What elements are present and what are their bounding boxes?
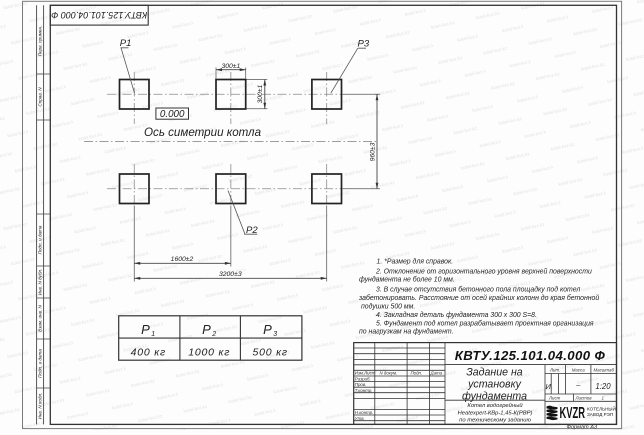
svg-text:2: 2 bbox=[211, 331, 216, 338]
svg-text:КОТЕЛЬНЫЙ: КОТЕЛЬНЫЙ bbox=[587, 405, 616, 412]
svg-text:Изм.Лист: Изм.Лист bbox=[355, 371, 376, 376]
svg-text:2. Отклонение от горизонтально: 2. Отклонение от горизонтального уровня … bbox=[375, 268, 592, 276]
svg-text:Взам. инв. N: Взам. инв. N bbox=[38, 304, 43, 331]
svg-text:Котел водогрейный: Котел водогрейный bbox=[467, 402, 523, 409]
svg-text:P: P bbox=[263, 322, 272, 337]
svg-text:Разраб.: Разраб. bbox=[355, 377, 371, 382]
svg-text:P: P bbox=[202, 322, 211, 337]
svg-text:960±3: 960±3 bbox=[370, 142, 377, 161]
svg-text:Н.контр.: Н.контр. bbox=[355, 410, 374, 415]
svg-text:Т.контр.: Т.контр. bbox=[355, 388, 373, 393]
svg-text:Перв. примен.: Перв. примен. bbox=[38, 26, 43, 57]
svg-text:Утв.: Утв. bbox=[355, 416, 365, 421]
svg-text:Лит.: Лит. bbox=[549, 367, 560, 372]
svg-text:5. Фундамент под котел разраба: 5. Фундамент под котел разрабатывает про… bbox=[376, 319, 594, 327]
svg-text:Подп. и дата: Подп. и дата bbox=[38, 225, 43, 254]
svg-text:3200±3: 3200±3 bbox=[219, 271, 242, 278]
svg-text:P1: P1 bbox=[120, 38, 132, 49]
svg-text:Heatexpert-КВр-1,45-К(РВР): Heatexpert-КВр-1,45-К(РВР) bbox=[458, 411, 533, 417]
svg-text:3: 3 bbox=[273, 331, 277, 338]
svg-text:P: P bbox=[141, 322, 150, 337]
svg-text:И: И bbox=[546, 382, 552, 391]
svg-text:400 кг: 400 кг bbox=[131, 347, 166, 359]
svg-text:Формат А3: Формат А3 bbox=[567, 424, 598, 430]
svg-text:1600±2: 1600±2 bbox=[171, 256, 194, 263]
svg-text:300±1: 300±1 bbox=[257, 84, 264, 103]
svg-text:1: 1 bbox=[151, 331, 155, 338]
svg-text:Ось симетрии котла: Ось симетрии котла bbox=[144, 126, 262, 139]
svg-text:Задание на: Задание на bbox=[466, 366, 523, 378]
svg-text:Лист: Лист bbox=[548, 395, 561, 400]
svg-text:Подп. и дата: Подп. и дата bbox=[38, 349, 43, 378]
svg-text:3. В случае отсутствия бетонно: 3. В случае отсутствия бетонного пола пл… bbox=[376, 286, 580, 294]
svg-text:N докум.: N докум. bbox=[380, 371, 398, 376]
svg-text:установку: установку bbox=[467, 378, 521, 390]
svg-text:Инв. N дубл.: Инв. N дубл. bbox=[38, 269, 43, 296]
svg-text:4. Закладная деталь фундамента: 4. Закладная деталь фундамента 300 х 300… bbox=[376, 311, 537, 319]
svg-text:забетонировать. Расстояние от: забетонировать. Расстояние от осей крайн… bbox=[358, 294, 599, 302]
svg-text:–: – bbox=[575, 380, 581, 389]
svg-text:фундамента: фундамента bbox=[462, 391, 527, 403]
svg-text:КВТУ.125.101.04.000 Ф: КВТУ.125.101.04.000 Ф bbox=[51, 10, 147, 20]
svg-text:KVZR: KVZR bbox=[560, 405, 586, 422]
svg-text:Масштаб: Масштаб bbox=[593, 367, 614, 372]
svg-text:1:20: 1:20 bbox=[595, 382, 611, 391]
svg-text:Подп.: Подп. bbox=[411, 371, 423, 376]
svg-text:300±1: 300±1 bbox=[221, 63, 240, 70]
svg-text:Справ. N: Справ. N bbox=[38, 87, 43, 107]
svg-text:по техническому заданию: по техническому заданию bbox=[459, 418, 531, 424]
svg-text:Листов: Листов bbox=[575, 395, 593, 400]
svg-text:ЗАВОД РЭП: ЗАВОД РЭП bbox=[587, 412, 613, 417]
svg-text:500 кг: 500 кг bbox=[253, 347, 288, 359]
svg-text:Инв. N подл.: Инв. N подл. bbox=[38, 393, 43, 420]
svg-text:Пров.: Пров. bbox=[355, 382, 367, 387]
svg-text:1000 кг: 1000 кг bbox=[188, 347, 230, 359]
svg-text:Масса: Масса bbox=[572, 367, 586, 372]
svg-text:КВТУ.125.101.04.000 Ф: КВТУ.125.101.04.000 Ф bbox=[455, 348, 606, 363]
svg-text:подушки 500 мм.: подушки 500 мм. bbox=[361, 303, 415, 311]
svg-text:1. *Размер для справок.: 1. *Размер для справок. bbox=[377, 258, 454, 266]
svg-text:Дата: Дата bbox=[430, 371, 443, 376]
svg-text:фундамента не более 10 мм.: фундамента не более 10 мм. bbox=[359, 276, 455, 284]
svg-text:по нагрузкам на фундамент.: по нагрузкам на фундамент. bbox=[359, 327, 454, 335]
svg-text:0.000: 0.000 bbox=[160, 109, 185, 120]
